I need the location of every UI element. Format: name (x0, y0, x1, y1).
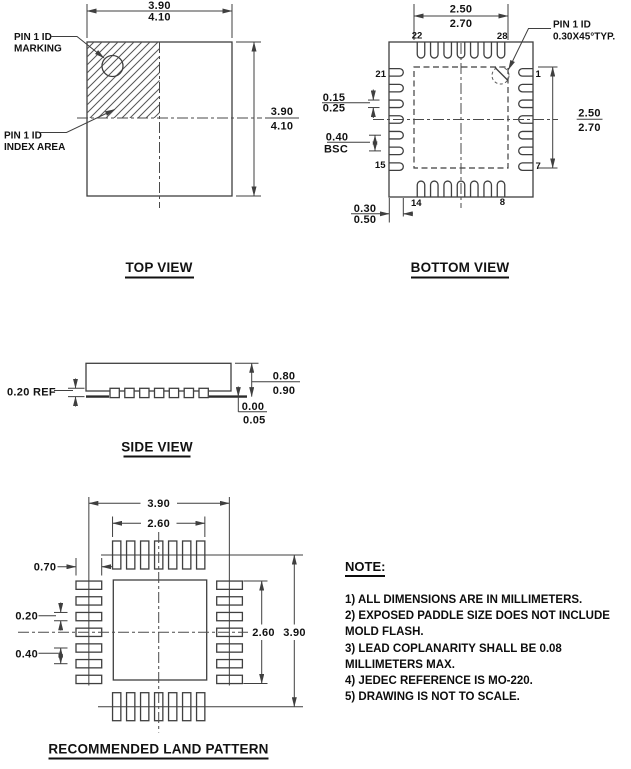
package-height-dimension: 0.80 0.90 (235, 363, 300, 397)
lead-length-dimension: 0.30 0.50 (351, 198, 413, 226)
pin-7-label: 7 (536, 161, 541, 172)
pin1-marking-label-line2: MARKING (14, 44, 62, 55)
lead-width-dimension: 0.15 0.25 (322, 90, 380, 119)
land-pad-length-dimension: 0.70 (34, 558, 113, 576)
standoff-max-text: 0.05 (243, 415, 266, 427)
bottom-view-centerlines (373, 43, 558, 208)
top-view: 3.90 4.10 3.90 4.10 PIN 1 ID MARKING PI (0, 0, 316, 300)
notes-block: NOTE: 1) ALL DIMENSIONS ARE IN MILLIMETE… (345, 558, 631, 705)
land-pad-pitch-dimension: 0.40 (15, 648, 67, 664)
lead-pitch-dimension: 0.40 BSC (324, 132, 381, 156)
top-view-title-text: TOP VIEW (125, 260, 192, 275)
qfn-package-mechanical-drawing: 3.90 4.10 3.90 4.10 PIN 1 ID MARKING PI (0, 0, 631, 769)
bottom-view: 2.50 2.70 PIN 1 ID 0.30X45°TYP. 22 28 21… (315, 0, 631, 300)
pin1-id-label-line2: 0.30X45°TYP. (553, 32, 615, 43)
notes-heading: NOTE: (345, 559, 385, 577)
top-height-max-text: 4.10 (271, 121, 294, 133)
lead-thickness-text: 0.20 REF (7, 387, 56, 399)
pin-15-label: 15 (375, 160, 386, 171)
paddle-width-max-text: 2.70 (450, 18, 473, 30)
standoff-min-text: 0.00 (242, 401, 265, 413)
center-paddle-land (113, 580, 206, 680)
top-width-min-text: 3.90 (148, 0, 171, 12)
land-pattern-title: RECOMMENDED LAND PATTERN (48, 742, 268, 759)
package-height-max-text: 0.90 (273, 385, 296, 397)
top-width-max-text: 4.10 (148, 12, 171, 24)
note-line: 5) DRAWING IS NOT TO SCALE. (345, 689, 631, 705)
side-view: 0.20 REF 0.80 0.90 0.00 0.05 SIDE VIEW (0, 330, 320, 465)
standoff-dimension: 0.00 0.05 (238, 387, 267, 427)
package-height-min-text: 0.80 (273, 371, 296, 383)
paddle-height-max-text: 2.70 (578, 122, 601, 134)
pin1-index-label-line1: PIN 1 ID (4, 131, 42, 142)
pin1-chamfer (492, 67, 509, 84)
top-height-dimension: 3.90 4.10 (236, 42, 299, 196)
side-view-leads (110, 388, 208, 397)
land-overall-width-text: 3.90 (147, 498, 170, 510)
lead-thickness-dimension: 0.20 REF (7, 379, 85, 407)
pin-1-label: 1 (536, 69, 542, 80)
note-line: MILLIMETERS MAX. (345, 657, 631, 673)
land-overall-height-dimension: 3.90 (283, 555, 306, 707)
paddle-width-min-text: 2.50 (450, 4, 473, 16)
pin-21-label: 21 (375, 69, 386, 80)
land-pad-length-text: 0.70 (34, 561, 57, 573)
paddle-width-dimension: 2.50 2.70 (414, 4, 508, 41)
pin1-id-label-line1: PIN 1 ID (553, 20, 591, 31)
bottom-view-title: BOTTOM VIEW (411, 260, 510, 278)
pin1-id-leader (509, 29, 552, 70)
pin1-index-label-line2: INDEX AREA (4, 142, 65, 153)
lead-pitch-value-text: 0.40 (326, 132, 349, 144)
lead-pitch-qualifier-text: BSC (324, 144, 348, 156)
pin-22-label: 22 (412, 31, 423, 42)
top-view-title: TOP VIEW (125, 260, 194, 278)
lead-length-max-text: 0.50 (354, 214, 377, 226)
package-body-profile (86, 363, 231, 391)
paddle-height-min-text: 2.50 (578, 108, 601, 120)
note-line: 1) ALL DIMENSIONS ARE IN MILLIMETERS. (345, 592, 631, 608)
note-line: 4) JEDEC REFERENCE IS MO-220. (345, 673, 631, 689)
pin-8-label: 8 (500, 197, 505, 208)
side-view-title: SIDE VIEW (121, 440, 193, 457)
land-overall-height-text: 3.90 (283, 627, 306, 639)
note-line: 2) EXPOSED PADDLE SIZE DOES NOT INCLUDE (345, 608, 631, 624)
land-overall-width-dimension: 3.90 (89, 498, 230, 510)
top-width-dimension: 3.90 4.10 (87, 0, 232, 38)
note-line: MOLD FLASH. (345, 624, 631, 640)
bottom-view-title-text: BOTTOM VIEW (411, 260, 510, 275)
land-col-span-text: 2.60 (252, 627, 275, 639)
pin-14-label: 14 (411, 198, 422, 209)
pin1-marking-label-line1: PIN 1 ID (14, 32, 52, 43)
land-extension-lines (89, 497, 303, 707)
top-height-min-text: 3.90 (271, 106, 294, 118)
land-pad-width-dimension: 0.20 (15, 603, 67, 631)
notes-lines: 1) ALL DIMENSIONS ARE IN MILLIMETERS. 2)… (345, 592, 631, 705)
note-line: 3) LEAD COPLANARITY SHALL BE 0.08 (345, 641, 631, 657)
land-pattern-title-text: RECOMMENDED LAND PATTERN (48, 742, 268, 757)
pin1-id-label: PIN 1 ID 0.30X45°TYP. (509, 20, 616, 70)
land-row-span-text: 2.60 (147, 518, 170, 530)
land-col-span-dimension: 2.60 (243, 581, 275, 684)
land-pattern-view: 3.90 2.60 (0, 480, 320, 769)
paddle-height-dimension: 2.50 2.70 (538, 67, 603, 168)
side-view-title-text: SIDE VIEW (121, 440, 193, 455)
land-pad-pitch-text: 0.40 (15, 648, 38, 660)
pin-28-label: 28 (497, 31, 508, 42)
land-pad-width-text: 0.20 (15, 610, 38, 622)
lead-width-max-text: 0.25 (323, 103, 346, 115)
